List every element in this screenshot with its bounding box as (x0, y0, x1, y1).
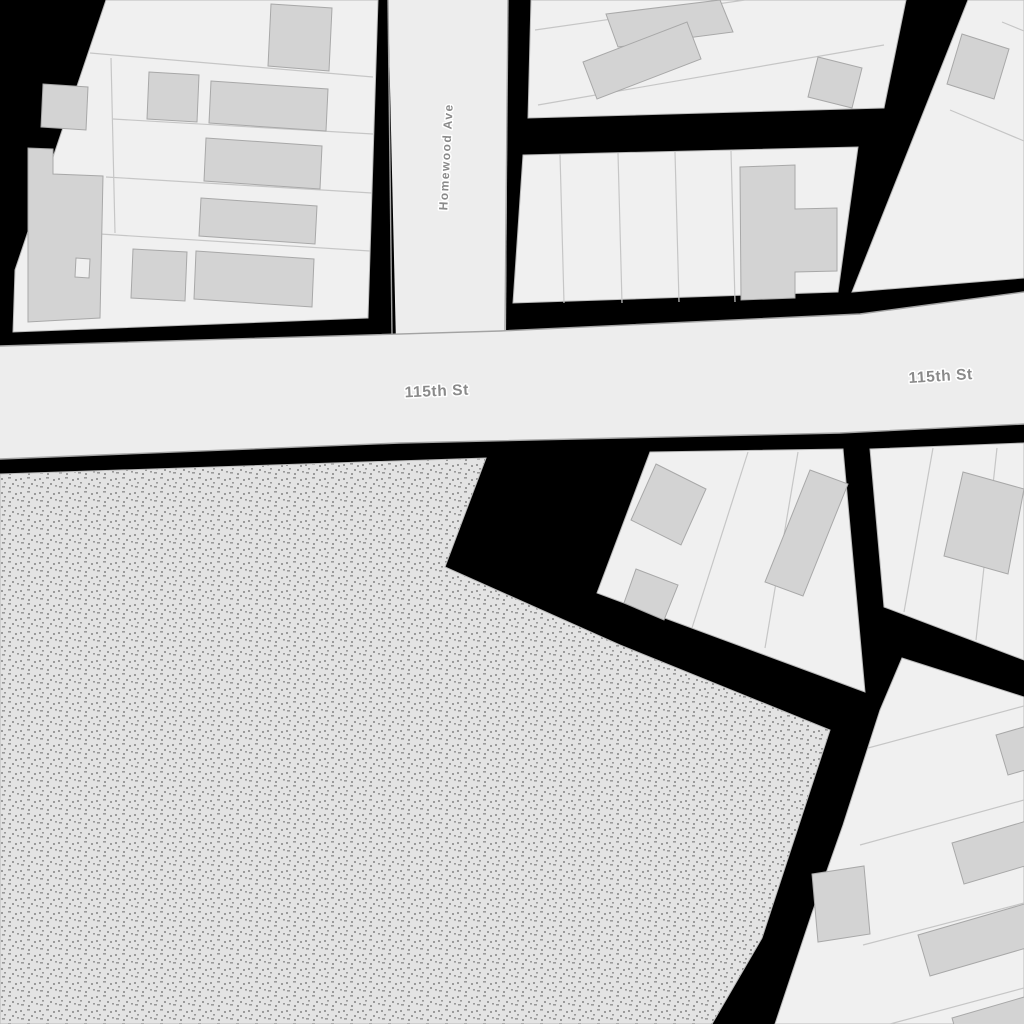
building (199, 198, 317, 244)
building-courtyard-cutout (75, 258, 90, 278)
building (41, 84, 88, 130)
building (268, 4, 332, 71)
building (812, 866, 870, 942)
map-canvas[interactable]: Homewood Ave 115th St 115th St (0, 0, 1024, 1024)
building (131, 249, 187, 301)
map-viewport[interactable]: Homewood Ave 115th St 115th St (0, 0, 1024, 1024)
building (194, 251, 314, 307)
street-label-115th-st-west: 115th St (404, 382, 469, 402)
building (147, 72, 199, 122)
building (209, 81, 328, 131)
building (204, 138, 322, 189)
